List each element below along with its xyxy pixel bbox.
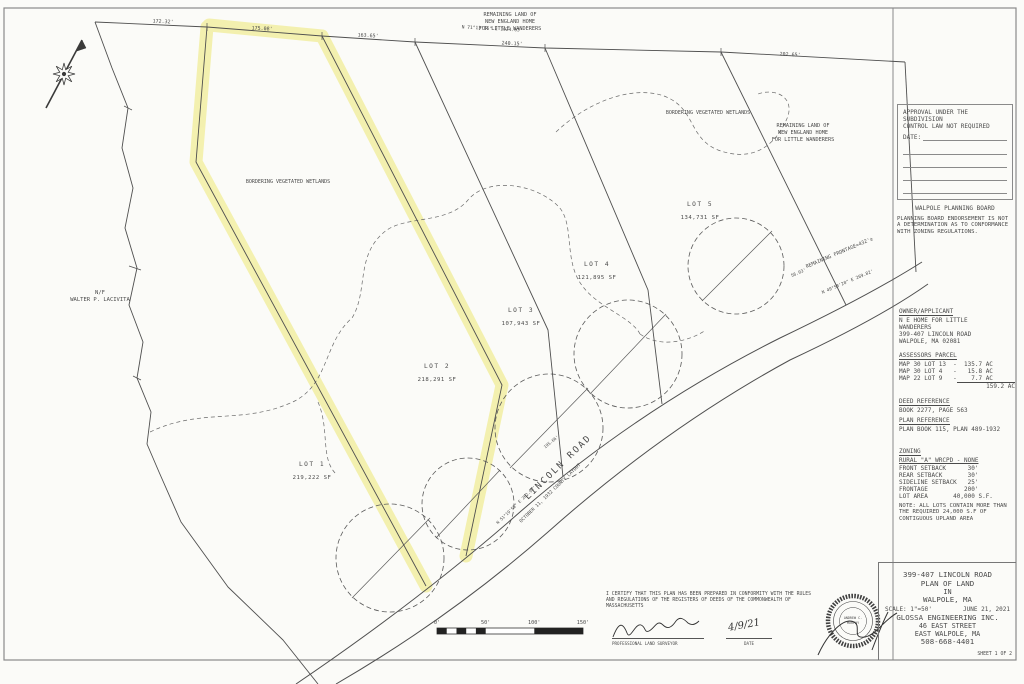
owner-line: WANDERERS	[899, 324, 1015, 331]
owner-line: WALPOLE, MA 02081	[899, 338, 1015, 345]
assessors-total: 159.2 AC	[957, 382, 1015, 390]
deed-value: BOOK 2277, PAGE 563	[899, 407, 1015, 414]
scale-tick: 150'	[577, 620, 590, 626]
survey-label: LOT 2	[424, 363, 450, 370]
sheet-border	[4, 8, 1016, 660]
survey-label: 195.66'	[543, 434, 560, 449]
title-block: 399-407 LINCOLN ROAD PLAN OF LAND IN WAL…	[878, 562, 1016, 660]
scale-bar: 0' 50' 100' 150'	[434, 620, 589, 634]
scale-tick: 0'	[434, 620, 440, 626]
survey-label: N 51°19'58" E 202.92'	[495, 485, 537, 525]
survey-label: 218,291 SF	[418, 377, 457, 383]
plan-ref-value: PLAN BOOK 115, PLAN 489-1932	[899, 426, 1015, 433]
survey-label: BORDERING VEGETATED WETLANDS	[246, 179, 330, 185]
zoning-block: ZONING RURAL "A" WRCPD - NONE FRONT SETB…	[899, 448, 1017, 500]
survey-plan-sheet: 0' 50' 100' 150' ANDREW C. MURPHY REMAIN…	[0, 0, 1024, 684]
title-line2: PLAN OF LAND	[879, 580, 1016, 589]
approval-date-blank	[923, 133, 1007, 141]
survey-label: 175.08'	[251, 25, 272, 32]
scale-tick: 100'	[528, 620, 541, 626]
survey-label: 107,943 SF	[502, 321, 541, 327]
title-line4: WALPOLE, MA	[879, 596, 1016, 605]
upland-note: NOTE: ALL LOTS CONTAIN MORE THAN THE REQ…	[899, 503, 1015, 522]
date-signature-label: DATE	[726, 641, 772, 646]
survey-label: 121,895 SF	[578, 275, 617, 281]
surveyor-seal: ANDREW C. MURPHY	[828, 596, 878, 646]
plan-ref-block: PLAN REFERENCE PLAN BOOK 115, PLAN 489-1…	[899, 417, 1015, 433]
assessors-row: MAP 22 LOT 9 - 7.7 AC	[899, 375, 1017, 382]
owner-block: OWNER/APPLICANT N E HOME FOR LITTLE WAND…	[899, 308, 1015, 345]
certification-text: I CERTIFY THAT THIS PLAN HAS BEEN PREPAR…	[606, 592, 814, 609]
zoning-heading: ZONING	[899, 448, 921, 456]
plan-ref-heading: PLAN REFERENCE	[899, 417, 950, 425]
signature-blank-line	[903, 155, 1007, 168]
survey-label: N/F	[95, 290, 105, 296]
survey-label: BORDERING VEGETATED WETLANDS	[666, 110, 750, 116]
survey-label: 202.65'	[779, 51, 800, 58]
survey-label: 219,222 SF	[293, 475, 332, 481]
survey-label: LOT 1	[299, 461, 325, 468]
lot2-highlight	[196, 25, 502, 586]
endorsement-note: PLANNING BOARD ENDORSEMENT IS NOT A DETE…	[897, 216, 1013, 235]
scale-tick: 50'	[481, 620, 490, 626]
deed-heading: DEED REFERENCE	[899, 398, 950, 406]
zoning-row: FRONTAGE 200'	[899, 486, 1017, 493]
surveyor-signature-line	[612, 638, 704, 639]
survey-label: 56.03'	[790, 267, 807, 279]
approval-line1: APPROVAL UNDER THE SUBDIVISION	[903, 109, 1007, 123]
deed-block: DEED REFERENCE BOOK 2277, PAGE 563	[899, 398, 1015, 414]
surveyor-signature-label: PROFESSIONAL LAND SURVEYOR	[612, 641, 708, 646]
survey-label: NEW ENGLAND HOME	[778, 130, 828, 136]
survey-label: LOT 4	[584, 261, 610, 268]
survey-label: FOR LITTLE WANDERERS	[772, 137, 834, 143]
planning-board-label: WALPOLE PLANNING BOARD	[897, 205, 1013, 212]
sheet-number: SHEET 1 OF 2	[977, 652, 1012, 657]
zoning-district: RURAL "A" WRCPD - NONE	[899, 457, 1017, 464]
survey-labels: REMAINING LAND OFNEW ENGLAND HOMEFOR LIT…	[70, 12, 874, 525]
assessors-block: ASSESSORS PARCEL MAP 30 LOT 13 - 135.7 A…	[899, 352, 1017, 390]
survey-label: 240.15'	[501, 40, 522, 47]
survey-label: LOT 5	[687, 201, 713, 208]
approval-box: APPROVAL UNDER THE SUBDIVISION CONTROL L…	[897, 104, 1013, 200]
wetland-lines	[150, 92, 789, 474]
signature-blank-line	[903, 142, 1007, 155]
signature-blank-line	[903, 168, 1007, 181]
plan-drawing: 0' 50' 100' 150' ANDREW C. MURPHY REMAIN…	[0, 0, 1024, 684]
parcel-boundaries	[95, 22, 916, 684]
firm-phone: 508-668-4401	[879, 638, 1016, 647]
zoning-row: SIDELINE SETBACK 25'	[899, 479, 1017, 486]
approval-date-label: DATE:	[903, 134, 921, 141]
zoning-row: FRONT SETBACK 30'	[899, 465, 1017, 472]
survey-label: WALTER P. LACIVITA	[70, 297, 130, 303]
firm-name: GLOSSA ENGINEERING INC.	[879, 614, 1016, 623]
survey-label: REMAINING FRONTAGE=432'±	[805, 236, 874, 270]
owner-line: N E HOME FOR LITTLE	[899, 317, 1015, 324]
seal-name-line1: ANDREW C.	[844, 616, 862, 620]
firm-address1: 46 EAST STREET	[879, 622, 1016, 630]
date-signature-line	[726, 638, 772, 639]
survey-label: REMAINING LAND OF	[776, 123, 829, 129]
lincoln-road-lines	[296, 262, 928, 684]
survey-label: 172.32'	[152, 18, 173, 25]
survey-label: 134,731 SF	[681, 215, 720, 221]
approval-line2: CONTROL LAW NOT REQUIRED	[903, 123, 1007, 130]
owner-heading: OWNER/APPLICANT	[899, 308, 953, 316]
assessors-row: MAP 30 LOT 13 - 135.7 AC	[899, 361, 1017, 368]
zoning-row: LOT AREA 40,000 S.F.	[899, 493, 1017, 500]
survey-label: REMAINING LAND OF	[483, 12, 536, 18]
survey-label: LOT 3	[508, 307, 534, 314]
survey-label: NEW ENGLAND HOME	[485, 19, 535, 25]
zoning-row: REAR SETBACK 30'	[899, 472, 1017, 479]
assessors-heading: ASSESSORS PARCEL	[899, 352, 957, 360]
survey-label: 163.65'	[357, 32, 378, 39]
north-arrow-icon	[46, 40, 86, 108]
survey-label: N 49°58'20" E 269.82'	[821, 268, 874, 295]
owner-line: 399-407 LINCOLN ROAD	[899, 331, 1015, 338]
signature-blank-line	[903, 181, 1007, 194]
assessors-row: MAP 30 LOT 4 - 15.8 AC	[899, 368, 1017, 375]
